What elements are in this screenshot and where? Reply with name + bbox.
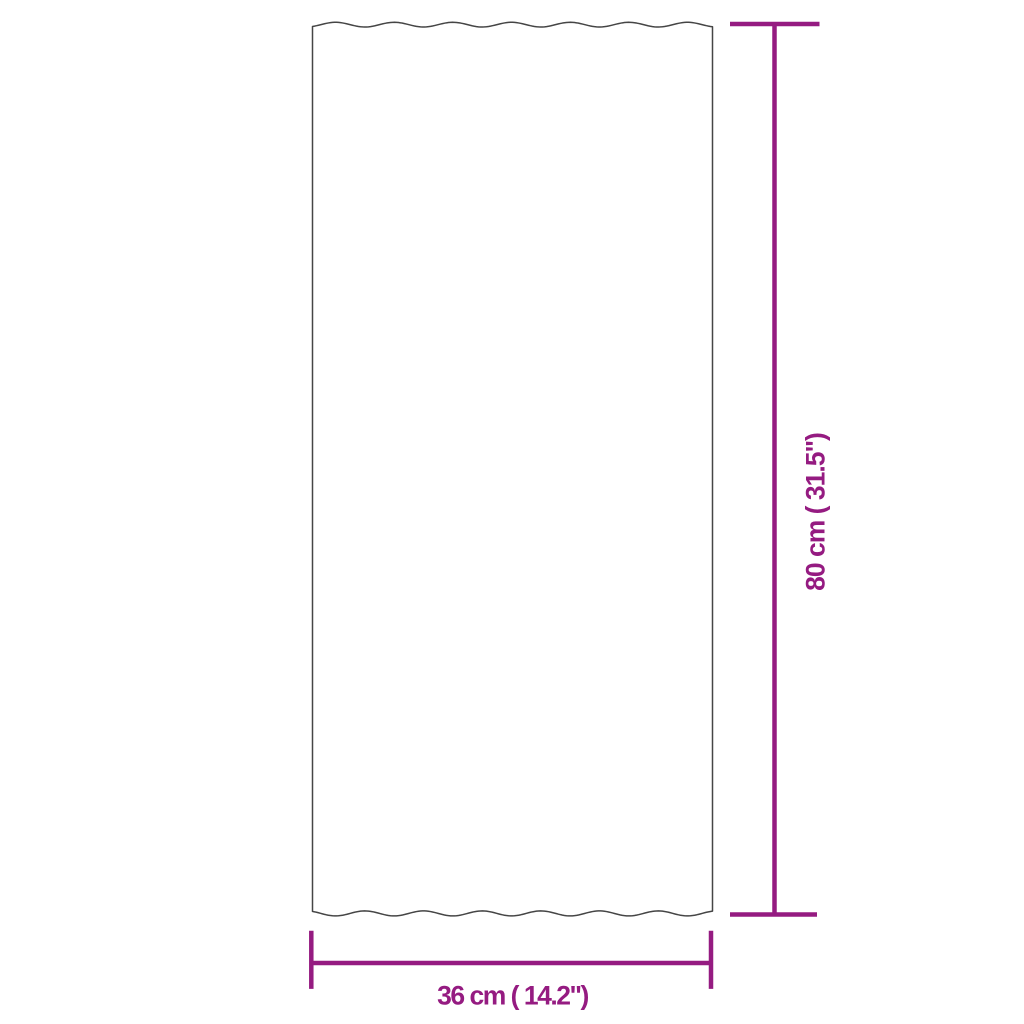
svg-text:80 cm ( 31.5"): 80 cm ( 31.5") [801,433,831,591]
svg-text:36 cm ( 14.2"): 36 cm ( 14.2") [437,981,588,1011]
